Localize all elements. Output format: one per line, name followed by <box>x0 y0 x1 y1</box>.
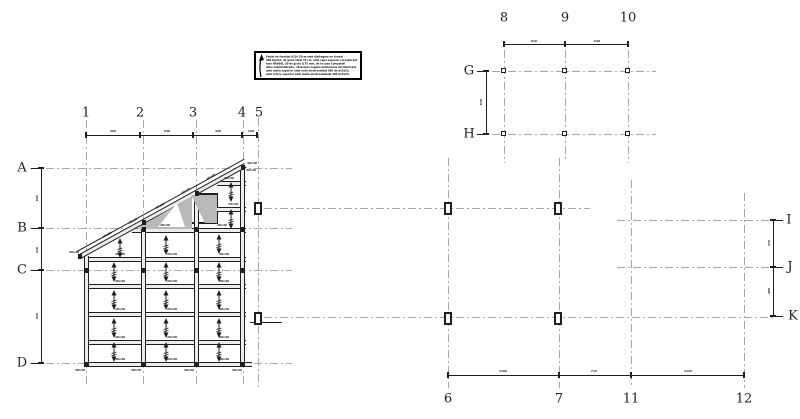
grid-axis-line <box>559 158 560 388</box>
size-annotation: 25x30 <box>167 252 177 255</box>
grid-axis-line <box>565 50 566 160</box>
column-symbol <box>554 312 562 325</box>
column-marker <box>241 227 245 232</box>
grid-label-5: 5 <box>255 106 263 121</box>
grid-label-1: 1 <box>82 106 90 121</box>
dimension-tick <box>38 167 44 169</box>
grid-label-I: I <box>786 213 791 228</box>
dimension-line <box>41 168 42 363</box>
dimension-tick <box>192 132 194 138</box>
column-symbol <box>444 202 452 215</box>
size-annotation: 30x30 <box>69 250 79 253</box>
grid-axis-line <box>628 50 629 163</box>
size-annotation: 490 <box>215 129 221 132</box>
column-marker <box>84 362 88 367</box>
size-annotation: 460 <box>110 129 116 132</box>
column-symbol <box>444 312 452 325</box>
size-annotation: 600 <box>35 195 38 201</box>
column-marker <box>195 362 199 367</box>
column-marker <box>241 268 245 273</box>
grid-label-C: C <box>17 263 27 278</box>
grid-label-J: J <box>787 260 792 275</box>
column-symbol <box>254 312 262 325</box>
note-line: amb reforç superior amb malla electrosol… <box>266 72 360 75</box>
size-annotation: 25x30 <box>167 357 177 360</box>
size-annotation: 30x30 <box>246 168 256 171</box>
grid-label-2: 2 <box>136 106 144 121</box>
size-annotation: 25x30 <box>167 279 177 282</box>
dimension-tick <box>743 372 745 378</box>
size-annotation: 25x30 <box>167 307 177 310</box>
column-marker <box>142 227 146 232</box>
note-arrow-icon <box>256 53 266 78</box>
grid-label-D: D <box>17 356 27 371</box>
size-annotation: 40x30 <box>219 335 229 338</box>
size-annotation: 470 <box>767 240 770 246</box>
notes-box: Forjat de formigó h20+25cm amb diafragma… <box>254 51 362 80</box>
dimension-tick <box>564 41 566 47</box>
column-marker <box>241 165 245 170</box>
column-marker <box>241 362 245 367</box>
grid-label-A: A <box>17 161 26 176</box>
column-marker <box>78 254 82 259</box>
dimension-tick <box>770 315 776 317</box>
grid-axis-line <box>504 50 505 163</box>
dimension-line <box>86 135 258 136</box>
beam <box>86 340 246 345</box>
size-annotation: 30x30 <box>75 368 85 371</box>
note-text-lines: Forjat de formigó h20+25cm amb diafragma… <box>266 55 360 76</box>
column-marker <box>195 268 199 273</box>
dimension-tick <box>447 372 449 378</box>
beam <box>132 228 246 233</box>
grid-axis-line <box>617 267 775 268</box>
grid-axis-line <box>631 180 632 388</box>
grid-axis-line <box>617 220 775 221</box>
size-annotation: 30x30 <box>247 161 257 164</box>
size-annotation: 1125 <box>684 369 692 372</box>
column-symbol-small <box>501 131 506 136</box>
size-annotation: 40x30 <box>217 223 227 226</box>
grid-label-8: 8 <box>500 11 508 26</box>
size-annotation: 40x30 <box>219 357 229 360</box>
dimension-tick <box>627 41 629 47</box>
size-annotation: 25x30 <box>224 176 234 179</box>
size-annotation: 40x30 <box>115 307 125 310</box>
dimension-tick <box>483 70 489 72</box>
dimension-line <box>448 375 744 376</box>
beam <box>86 284 246 289</box>
dimension-tick <box>770 219 776 221</box>
grid-axis-line <box>448 158 449 388</box>
dimension-tick <box>139 132 141 138</box>
dimension-line <box>504 44 628 45</box>
column-symbol-small <box>625 68 630 73</box>
grid-label-11: 11 <box>623 392 640 407</box>
grid-label-10: 10 <box>620 11 637 26</box>
dimension-tick <box>770 266 776 268</box>
dimension-tick <box>38 227 44 229</box>
shading-and-arrows-layer <box>0 0 800 419</box>
grid-label-7: 7 <box>555 392 563 407</box>
size-annotation: 530 <box>164 129 170 132</box>
size-annotation: 40x30 <box>115 252 125 255</box>
grid-axis-line <box>264 208 590 209</box>
size-annotation: 628 <box>594 39 600 42</box>
size-annotation: 25x30 <box>167 335 177 338</box>
grid-axis-line <box>744 193 745 388</box>
column-symbol <box>554 202 562 215</box>
beam <box>86 257 246 262</box>
grid-axis-line <box>492 134 656 135</box>
size-annotation: 616 <box>531 39 537 42</box>
grid-label-9: 9 <box>561 11 569 26</box>
grid-axis-line <box>30 270 292 271</box>
size-annotation: 30x30 <box>131 368 141 371</box>
column-marker <box>142 220 146 225</box>
grid-axis-line <box>264 317 776 318</box>
beam <box>240 167 245 367</box>
dimension-tick <box>558 372 560 378</box>
dimension-tick <box>85 132 87 138</box>
column-marker <box>142 268 146 273</box>
joist-direction-arrow-icon <box>217 234 222 254</box>
size-annotation: 25x30 <box>228 202 238 205</box>
size-annotation: 40x30 <box>219 307 229 310</box>
column-symbol <box>254 202 262 215</box>
size-annotation: 30x30 <box>184 368 194 371</box>
dimension-tick <box>630 372 632 378</box>
grid-label-4: 4 <box>238 106 246 121</box>
beam <box>141 222 146 367</box>
size-annotation: 40x30 <box>115 335 125 338</box>
grid-label-K: K <box>788 309 798 324</box>
dimension-line <box>773 220 774 316</box>
grid-label-12: 12 <box>736 392 753 407</box>
dimension-tick <box>503 41 505 47</box>
grid-label-H: H <box>463 127 474 142</box>
size-annotation: 715 <box>591 369 597 372</box>
size-annotation: 1100 <box>499 369 507 372</box>
grid-axis-line <box>258 118 259 390</box>
size-annotation: 420 <box>35 247 38 253</box>
size-annotation: 40x30 <box>219 279 229 282</box>
joist-direction-arrow-icon <box>229 209 234 229</box>
size-annotation: 40x30 <box>160 223 170 226</box>
size-annotation: 160 <box>248 129 254 132</box>
dimension-tick <box>256 132 258 138</box>
drawing-canvas: Forjat de formigó h20+25cm amb diafragma… <box>0 0 800 419</box>
dimension-tick <box>38 269 44 271</box>
size-annotation: 40x30 <box>115 279 125 282</box>
column-symbol-small <box>625 131 630 136</box>
size-annotation: 40x30 <box>115 357 125 360</box>
beam <box>194 193 199 367</box>
dimension-tick <box>483 133 489 135</box>
grid-axis-line <box>492 71 656 72</box>
column-marker <box>142 362 146 367</box>
dimension-line <box>486 71 487 134</box>
grid-label-G: G <box>464 64 474 79</box>
size-annotation: 625 <box>479 99 482 105</box>
beam <box>84 362 252 367</box>
size-annotation: 40x30 <box>219 252 229 255</box>
grid-label-6: 6 <box>444 392 452 407</box>
dimension-tick <box>241 132 243 138</box>
beam <box>86 312 246 317</box>
note-text: Forjat de formigó h20+25cm amb diafragma… <box>266 53 360 78</box>
column-marker <box>195 191 199 196</box>
column-marker <box>195 227 199 232</box>
grid-label-3: 3 <box>189 106 197 121</box>
size-annotation: 485 <box>767 288 770 294</box>
column-symbol-small <box>501 68 506 73</box>
column-marker <box>84 268 88 273</box>
column-symbol-small <box>562 131 567 136</box>
grid-label-B: B <box>17 221 27 236</box>
size-annotation: 30x30 <box>232 368 242 371</box>
column-symbol-small <box>562 68 567 73</box>
size-annotation: 920 <box>35 313 38 319</box>
dimension-tick <box>38 362 44 364</box>
